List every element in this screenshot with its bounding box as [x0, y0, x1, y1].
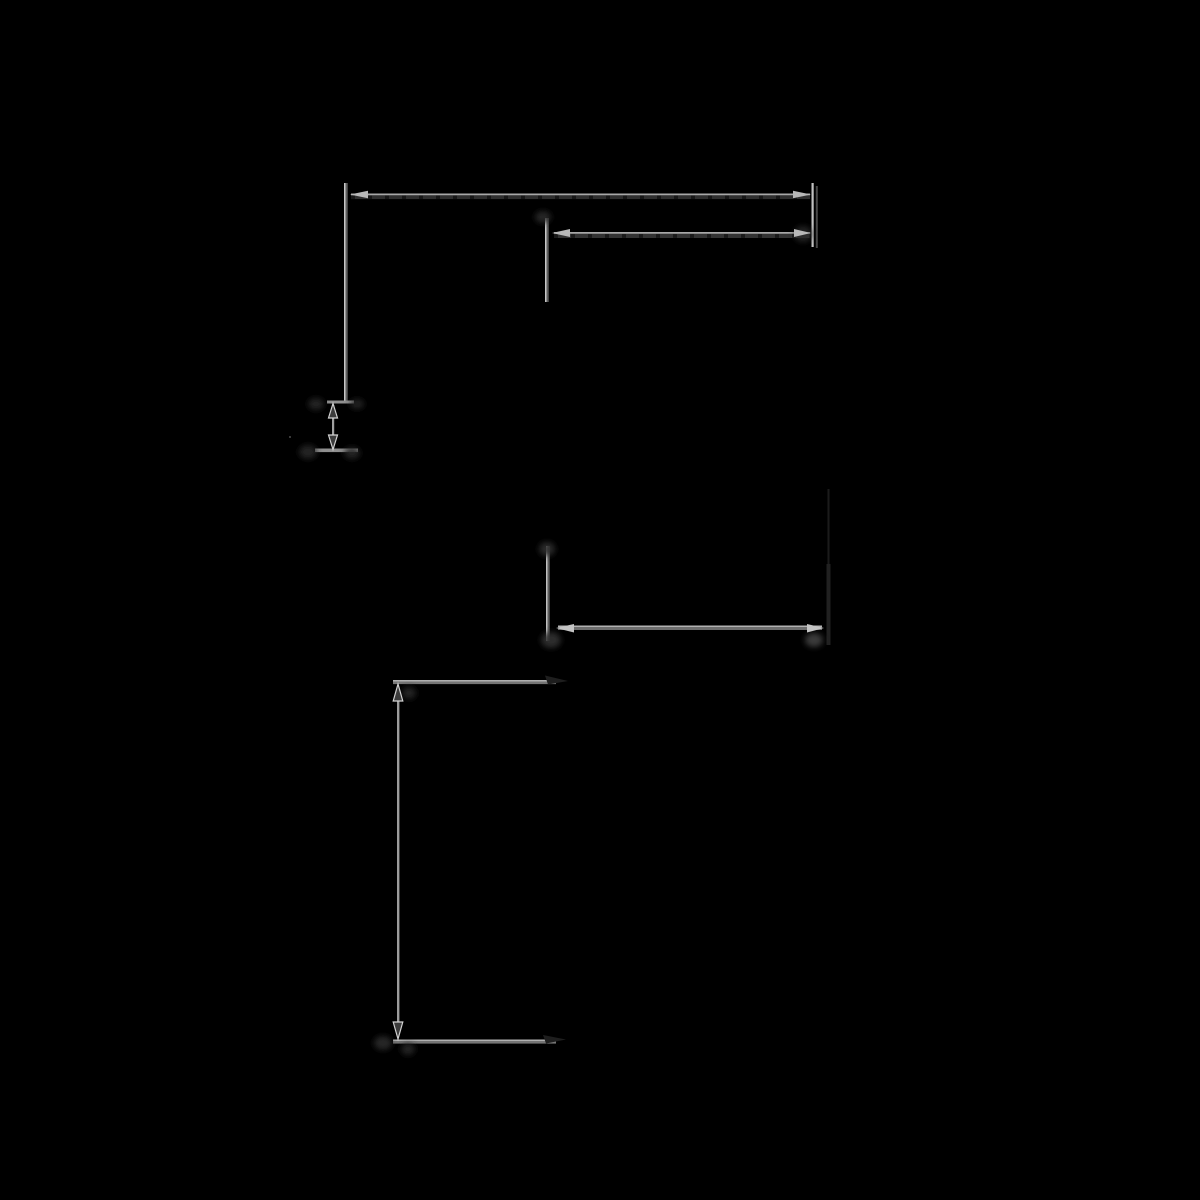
top-dimension-line [351, 194, 810, 196]
upper-inner-dimension-line [554, 232, 810, 234]
upper-inner-dimension-line-shadow [554, 234, 810, 238]
middle-dimension-arrow-right [807, 624, 824, 633]
junction-smudge-middle-extension-bottom [541, 632, 561, 648]
middle-dimension-line [558, 627, 822, 630]
hidden-arrowhead-top-extension [545, 676, 568, 685]
small-dimension-arrow-up [329, 404, 338, 419]
left-extension-line-highlight [344, 183, 346, 403]
junction-smudge-small-tick-top-left [308, 398, 324, 410]
right-extension-line-shadow [816, 186, 818, 248]
inner-extension-line-highlight [545, 218, 547, 302]
junction-smudge-small-tick-bottom-right [344, 447, 360, 459]
screenshot-root [0, 0, 1200, 1200]
middle-left-extension-highlight [546, 546, 548, 641]
bottom-dimension-shaft [397, 687, 399, 1036]
middle-dimension-line-highlight [558, 626, 822, 628]
right-extension-line [812, 183, 814, 247]
small-dimension-top-tick [327, 401, 354, 404]
bottom-top-extension-highlight [393, 680, 556, 682]
bottom-bottom-extension-highlight [393, 1040, 556, 1042]
junction-smudge-small-tick-bottom-left [299, 445, 317, 459]
small-dimension-arrow-down [329, 435, 338, 450]
inner-extension-line [547, 218, 549, 302]
gray-smudge-middle-right-corner [805, 633, 823, 647]
bottom-dimension-arrow-up [393, 684, 403, 701]
junction-smudge-bottom-corner-left [374, 1036, 392, 1050]
middle-right-hidden-edge-upper [828, 489, 830, 565]
middle-right-hidden-edge-lower [827, 564, 831, 645]
bottom-dimension-arrow-down [393, 1022, 403, 1039]
middle-left-extension-line [548, 546, 550, 641]
faint-dot [289, 436, 291, 438]
junction-smudge-middle-extension-top [539, 542, 555, 556]
bottom-bottom-extension-line [393, 1041, 556, 1044]
left-extension-line [346, 183, 348, 403]
junction-smudge-small-tick-top-right [350, 399, 364, 409]
middle-dimension-arrow-left [556, 624, 574, 633]
junction-smudge-inner-extension-top [535, 211, 551, 223]
bottom-top-extension-line [393, 682, 556, 685]
junction-smudge-bottom-arrow-top [402, 687, 416, 699]
technical-drawing-canvas [0, 0, 1200, 1200]
junction-smudge-bottom-corner-right [401, 1043, 415, 1055]
